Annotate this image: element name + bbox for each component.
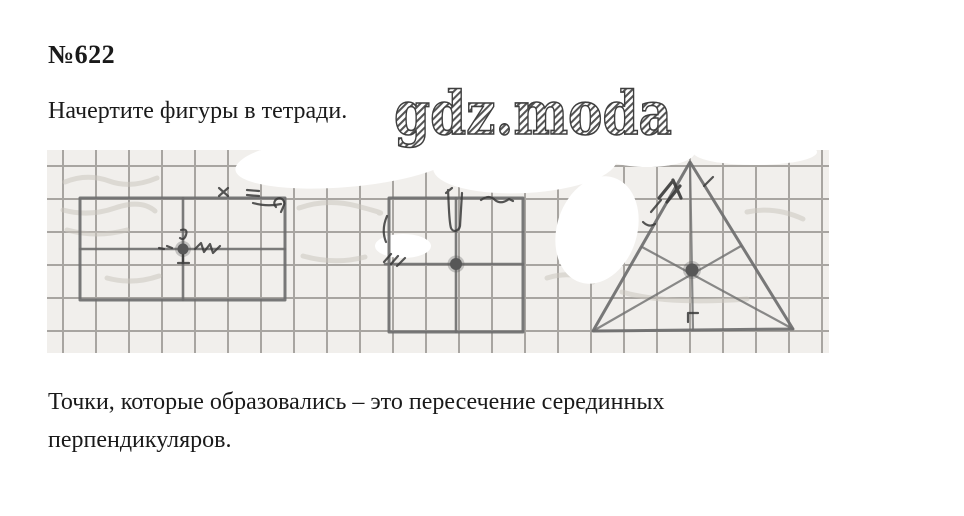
page-root: { "page": { "exercise_number": "№622", "… (0, 0, 964, 516)
figures-overlay (47, 150, 829, 353)
rectangle-figure (80, 198, 285, 300)
white-patches (233, 150, 817, 295)
square-center-point (450, 258, 462, 270)
square-figure (385, 198, 523, 332)
watermark-text: gdz.moda (394, 79, 672, 149)
triangle-center-point (686, 264, 699, 277)
triangle-cevian-from-apex (690, 162, 693, 330)
rectangle-center-point (178, 244, 189, 255)
instruction-text: Начертите фигуры в тетради. (48, 97, 347, 125)
conclusion-text: Точки, которые образовались – это пересе… (48, 383, 796, 459)
gdz-moda-watermark: gdz.moda (390, 76, 682, 156)
exercise-number: №622 (48, 40, 115, 70)
notebook-figures-image (47, 150, 829, 353)
